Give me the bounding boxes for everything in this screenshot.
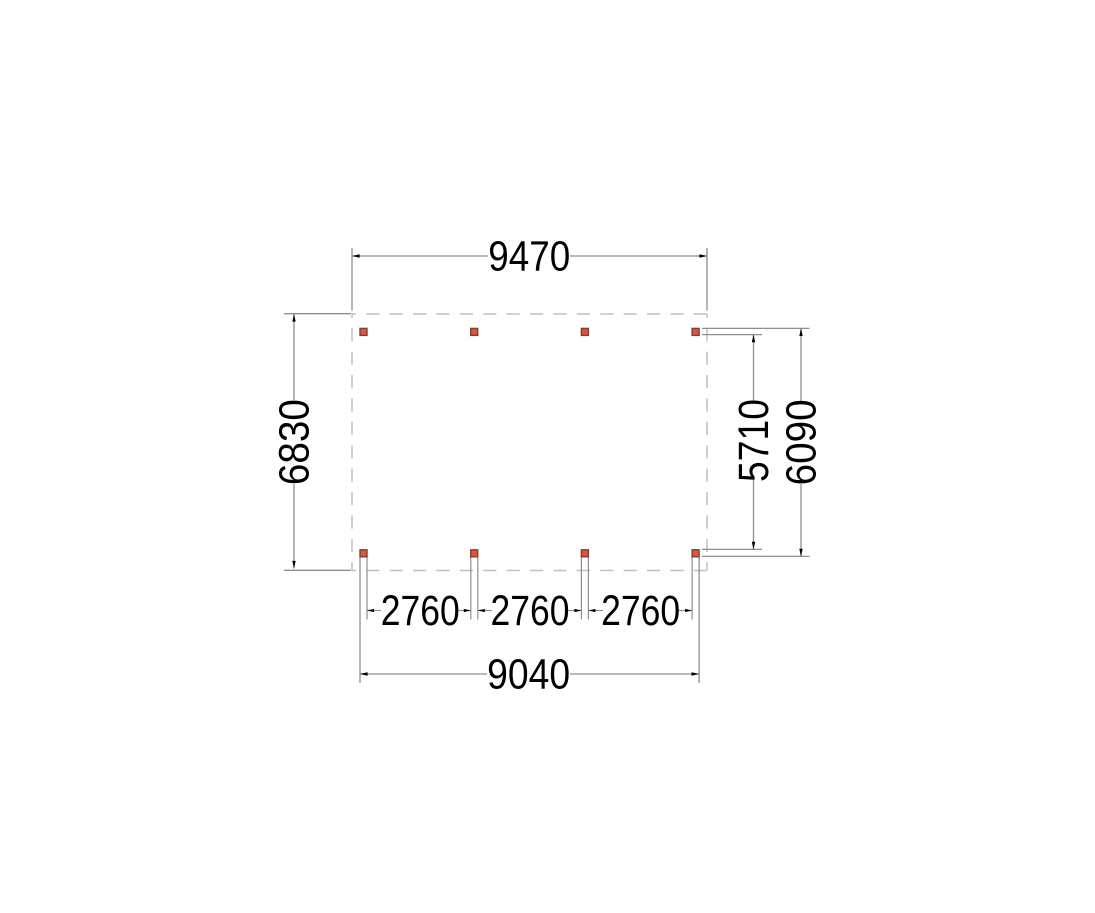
svg-text:9470: 9470 [488,233,570,280]
svg-text:9040: 9040 [487,651,570,698]
svg-text:2760: 2760 [491,588,570,635]
svg-text:2760: 2760 [601,588,680,635]
svg-text:5710: 5710 [731,399,778,482]
svg-text:6830: 6830 [271,399,318,485]
svg-text:6090: 6090 [778,399,825,485]
svg-text:2760: 2760 [381,588,460,635]
